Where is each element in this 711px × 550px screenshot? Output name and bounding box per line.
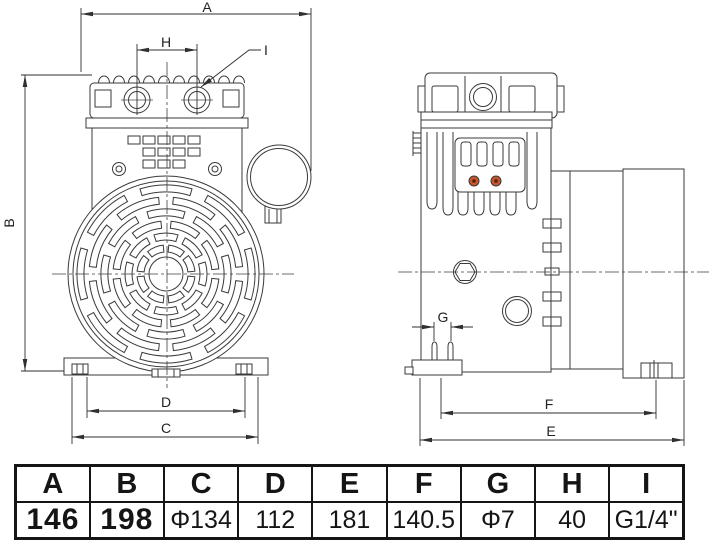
dim-label-E: E [546, 423, 555, 439]
dim-label-F: F [545, 396, 554, 412]
side-view [405, 73, 684, 378]
front-view [64, 76, 311, 377]
side-hole [503, 297, 532, 326]
dim-label-D: D [161, 394, 171, 410]
vent-grid [128, 136, 200, 168]
dim-label-I: I [264, 42, 268, 58]
dim-value-cell: Φ7 [461, 502, 535, 539]
side-rear-foot [641, 360, 672, 378]
dim-header-cell: I [609, 466, 683, 503]
dim-label-H: H [161, 34, 171, 50]
side-front-foot [405, 342, 462, 375]
dim-label-A: A [202, 0, 212, 15]
dim-label-C: C [161, 420, 171, 436]
cylinder-head-side [418, 73, 564, 128]
fan-grille-segment [154, 233, 178, 241]
motor-mid-block [570, 171, 623, 369]
dim-F: F [441, 378, 656, 419]
dimension-table-header-row: A B C D E F G H I [16, 466, 684, 503]
screw-dot-left-center [472, 179, 476, 183]
head-fins-loops [99, 76, 245, 83]
dim-label-B: B [1, 218, 17, 227]
dim-B: B [1, 75, 92, 371]
capacitor-cover [247, 145, 311, 223]
fan-grille-segment [154, 307, 178, 315]
dim-header-cell: A [16, 466, 90, 503]
fin-plate [455, 138, 525, 192]
dim-value-cell: 181 [312, 502, 386, 539]
motor-rear-cap [623, 169, 684, 378]
dim-value-cell: G1/4" [609, 502, 683, 539]
dim-header-cell: E [312, 466, 386, 503]
dim-label-G: G [438, 309, 449, 325]
dim-value-cell: 112 [238, 502, 312, 539]
dim-value-cell: 146 [16, 502, 90, 539]
dim-header-cell: H [535, 466, 609, 503]
dim-value-cell: 198 [90, 502, 164, 539]
dim-value-cell: 40 [535, 502, 609, 539]
engineering-drawing-page: { "drawing": { "dims": { "A":"A", "B":"B… [0, 0, 711, 550]
dim-value-cell: 140.5 [387, 502, 461, 539]
dimension-table: A B C D E F G H I 146 198 Φ134 112 181 1… [14, 464, 685, 540]
dim-header-cell: B [90, 466, 164, 503]
dim-header-cell: D [238, 466, 312, 503]
dim-D: D [87, 377, 245, 418]
serration-strip [413, 131, 421, 156]
dim-header-cell: C [164, 466, 238, 503]
technical-drawing: A H I B D [0, 0, 711, 462]
dim-C: C [72, 377, 258, 444]
screw-dot-right-center [494, 179, 498, 183]
dimension-table-value-row: 146 198 Φ134 112 181 140.5 Φ7 40 G1/4" [16, 502, 684, 539]
dim-value-cell: Φ134 [164, 502, 238, 539]
dim-header-cell: G [461, 466, 535, 503]
dim-header-cell: F [387, 466, 461, 503]
drain-tab [152, 369, 180, 377]
dim-E: E [420, 378, 684, 446]
